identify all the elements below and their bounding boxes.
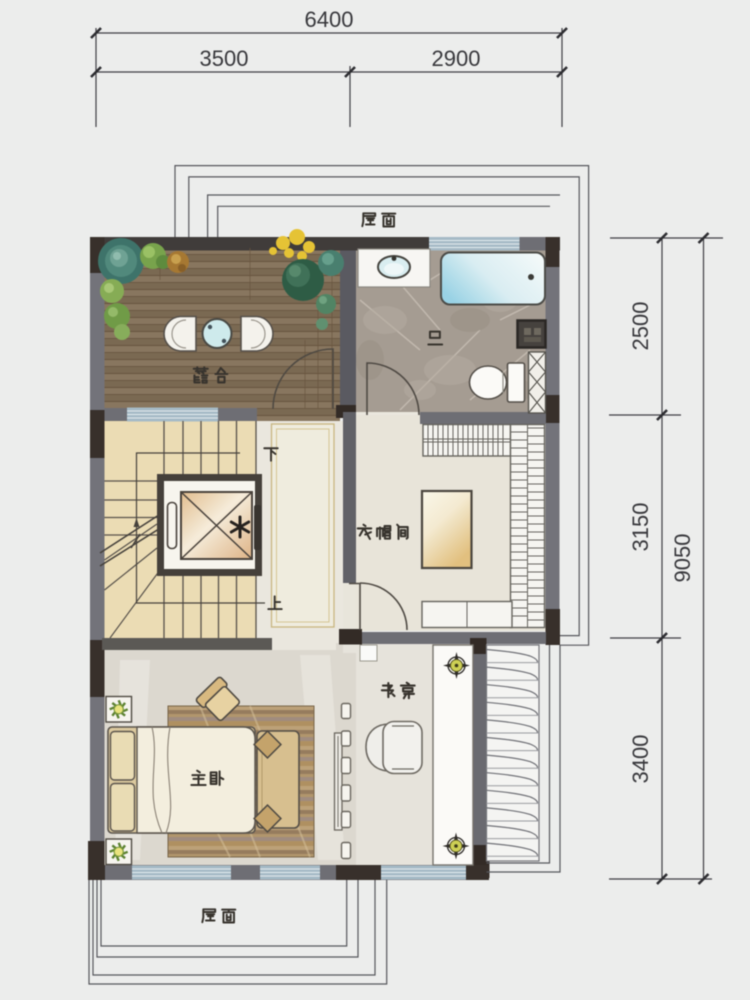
svg-text:6400: 6400 (305, 7, 354, 32)
svg-text:9050: 9050 (670, 534, 695, 583)
svg-text:3500: 3500 (200, 46, 249, 71)
svg-text:2900: 2900 (432, 46, 481, 71)
svg-text:3400: 3400 (628, 735, 653, 784)
svg-text:2500: 2500 (628, 302, 653, 351)
svg-text:3150: 3150 (628, 503, 653, 552)
